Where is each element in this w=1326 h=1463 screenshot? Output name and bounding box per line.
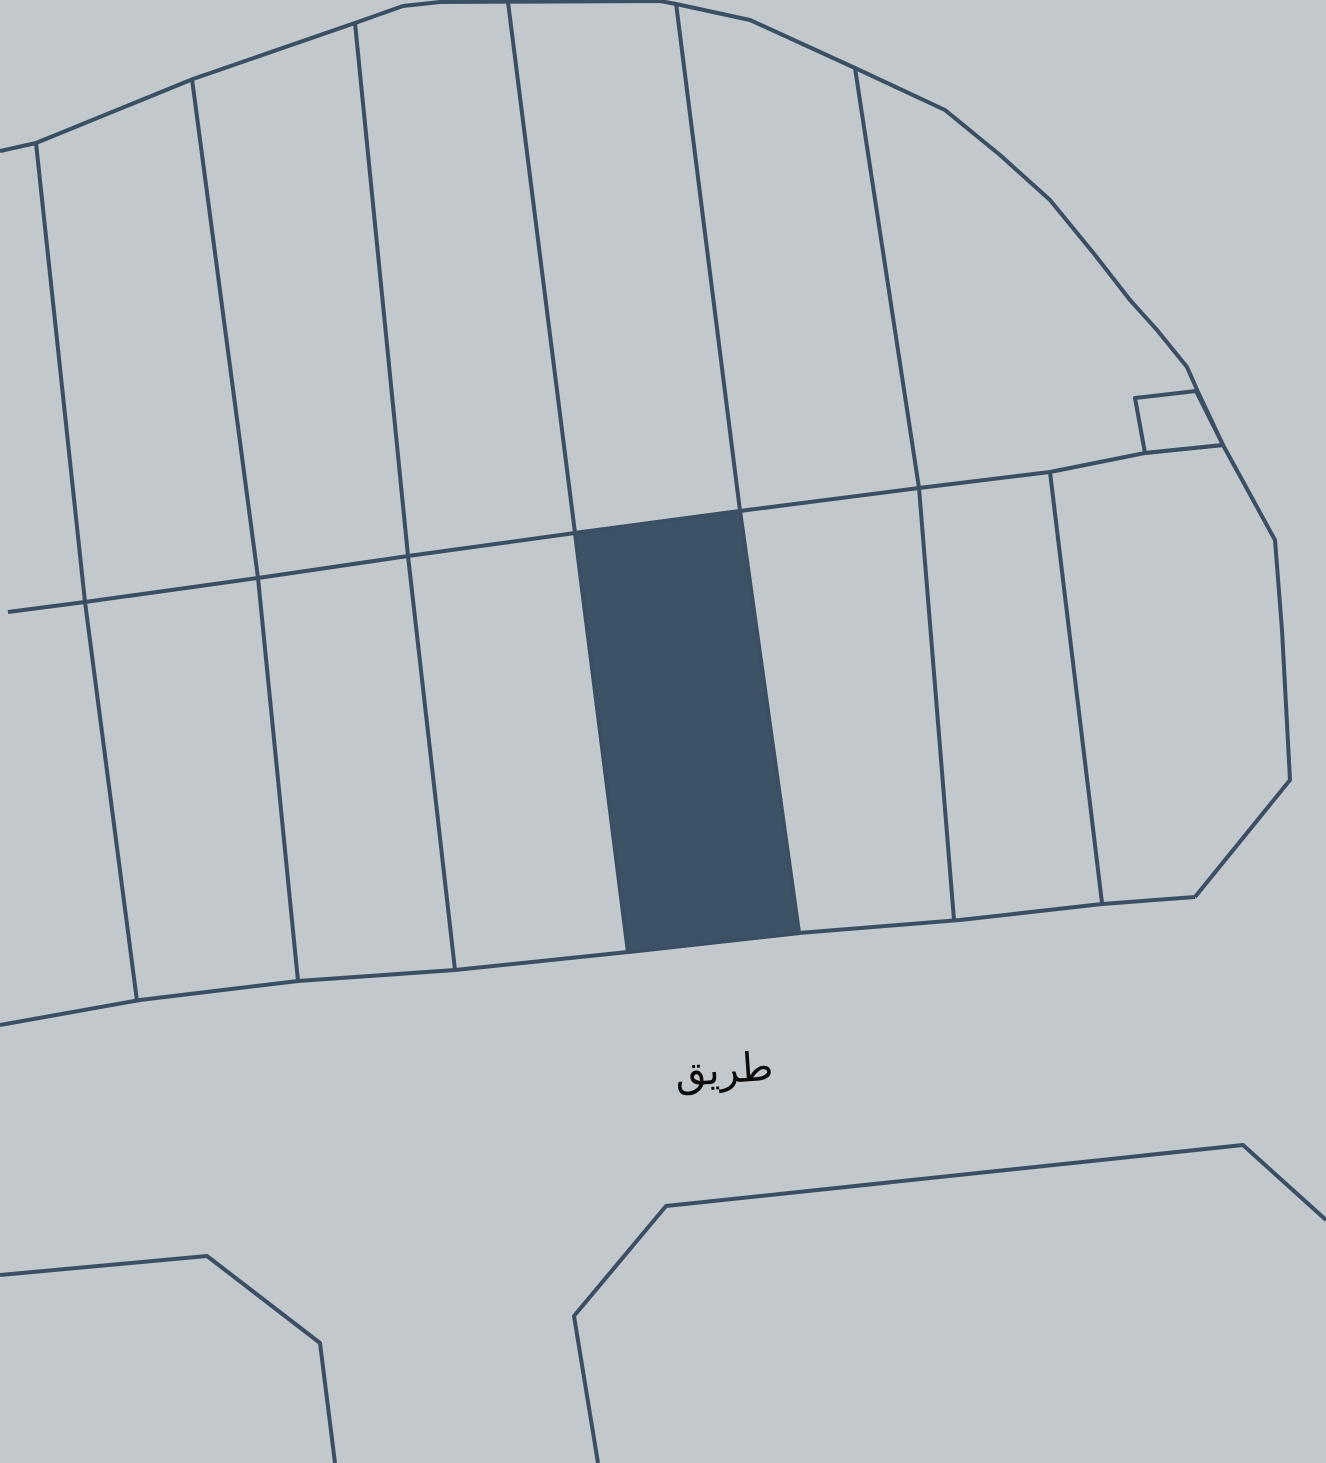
road-label: طريق bbox=[673, 1044, 774, 1097]
map-canvas[interactable]: طريق bbox=[0, 0, 1326, 1463]
